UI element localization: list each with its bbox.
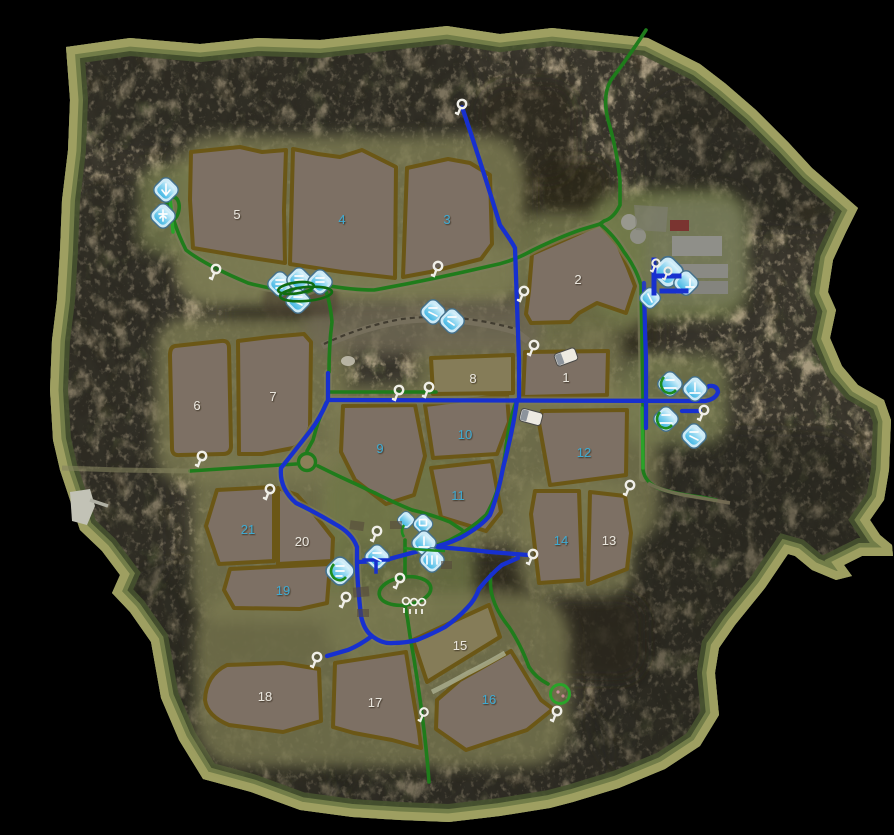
- svg-text:12: 12: [577, 445, 591, 460]
- svg-text:9: 9: [376, 441, 383, 456]
- svg-text:18: 18: [258, 689, 272, 704]
- svg-text:2: 2: [574, 272, 581, 287]
- svg-text:10: 10: [458, 427, 472, 442]
- svg-text:3: 3: [443, 212, 450, 227]
- svg-text:16: 16: [482, 692, 496, 707]
- svg-text:19: 19: [276, 583, 290, 598]
- svg-text:13: 13: [602, 533, 616, 548]
- svg-text:8: 8: [469, 371, 476, 386]
- svg-text:20: 20: [295, 534, 309, 549]
- svg-text:11: 11: [451, 488, 465, 503]
- svg-text:6: 6: [193, 398, 200, 413]
- svg-text:7: 7: [269, 389, 276, 404]
- svg-text:5: 5: [233, 207, 240, 222]
- svg-text:21: 21: [241, 522, 255, 537]
- svg-text:14: 14: [554, 533, 568, 548]
- svg-text:17: 17: [368, 695, 382, 710]
- svg-text:15: 15: [453, 638, 467, 653]
- svg-text:4: 4: [338, 212, 345, 227]
- svg-text:1: 1: [562, 370, 569, 385]
